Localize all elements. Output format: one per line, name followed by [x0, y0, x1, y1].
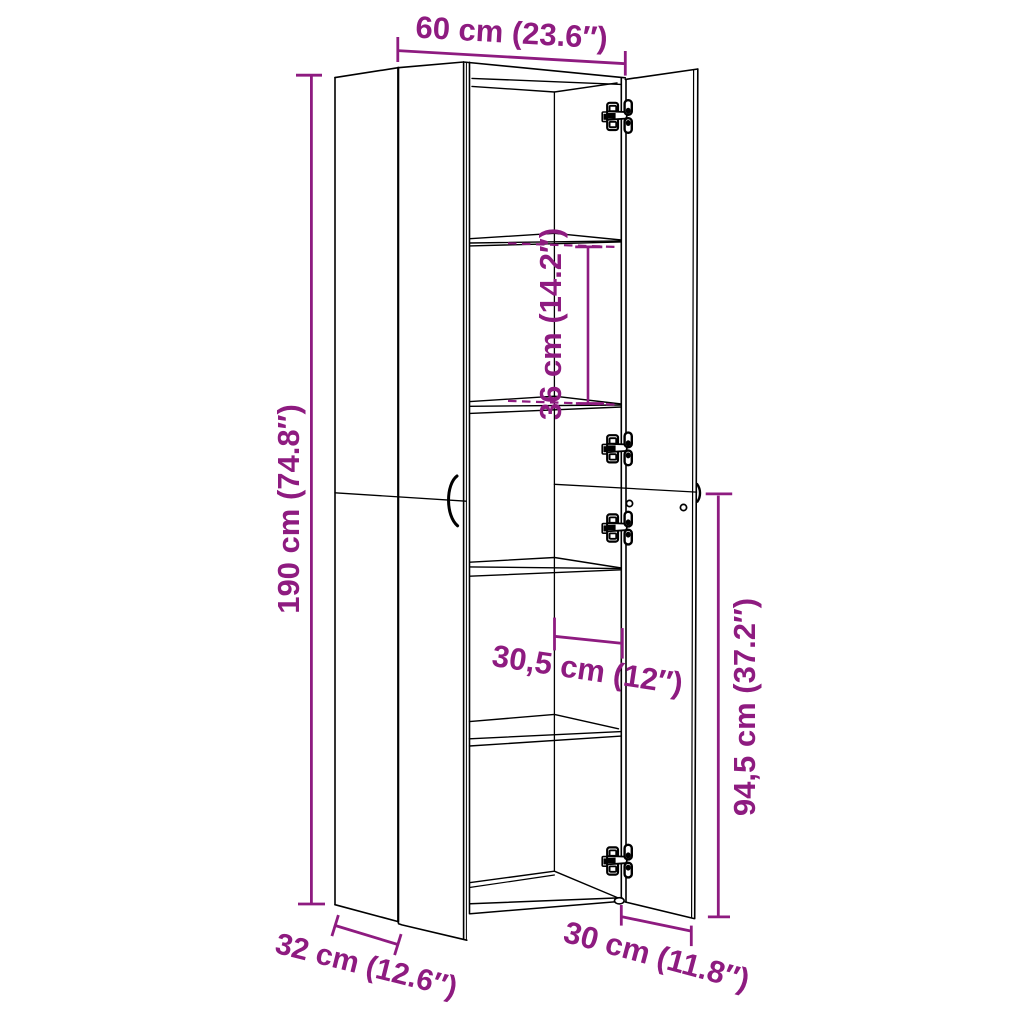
svg-text:94,5 cm (37.2″): 94,5 cm (37.2″): [727, 598, 762, 816]
svg-text:36 cm (14.2″): 36 cm (14.2″): [533, 228, 568, 420]
svg-text:190 cm (74.8″): 190 cm (74.8″): [271, 404, 306, 614]
